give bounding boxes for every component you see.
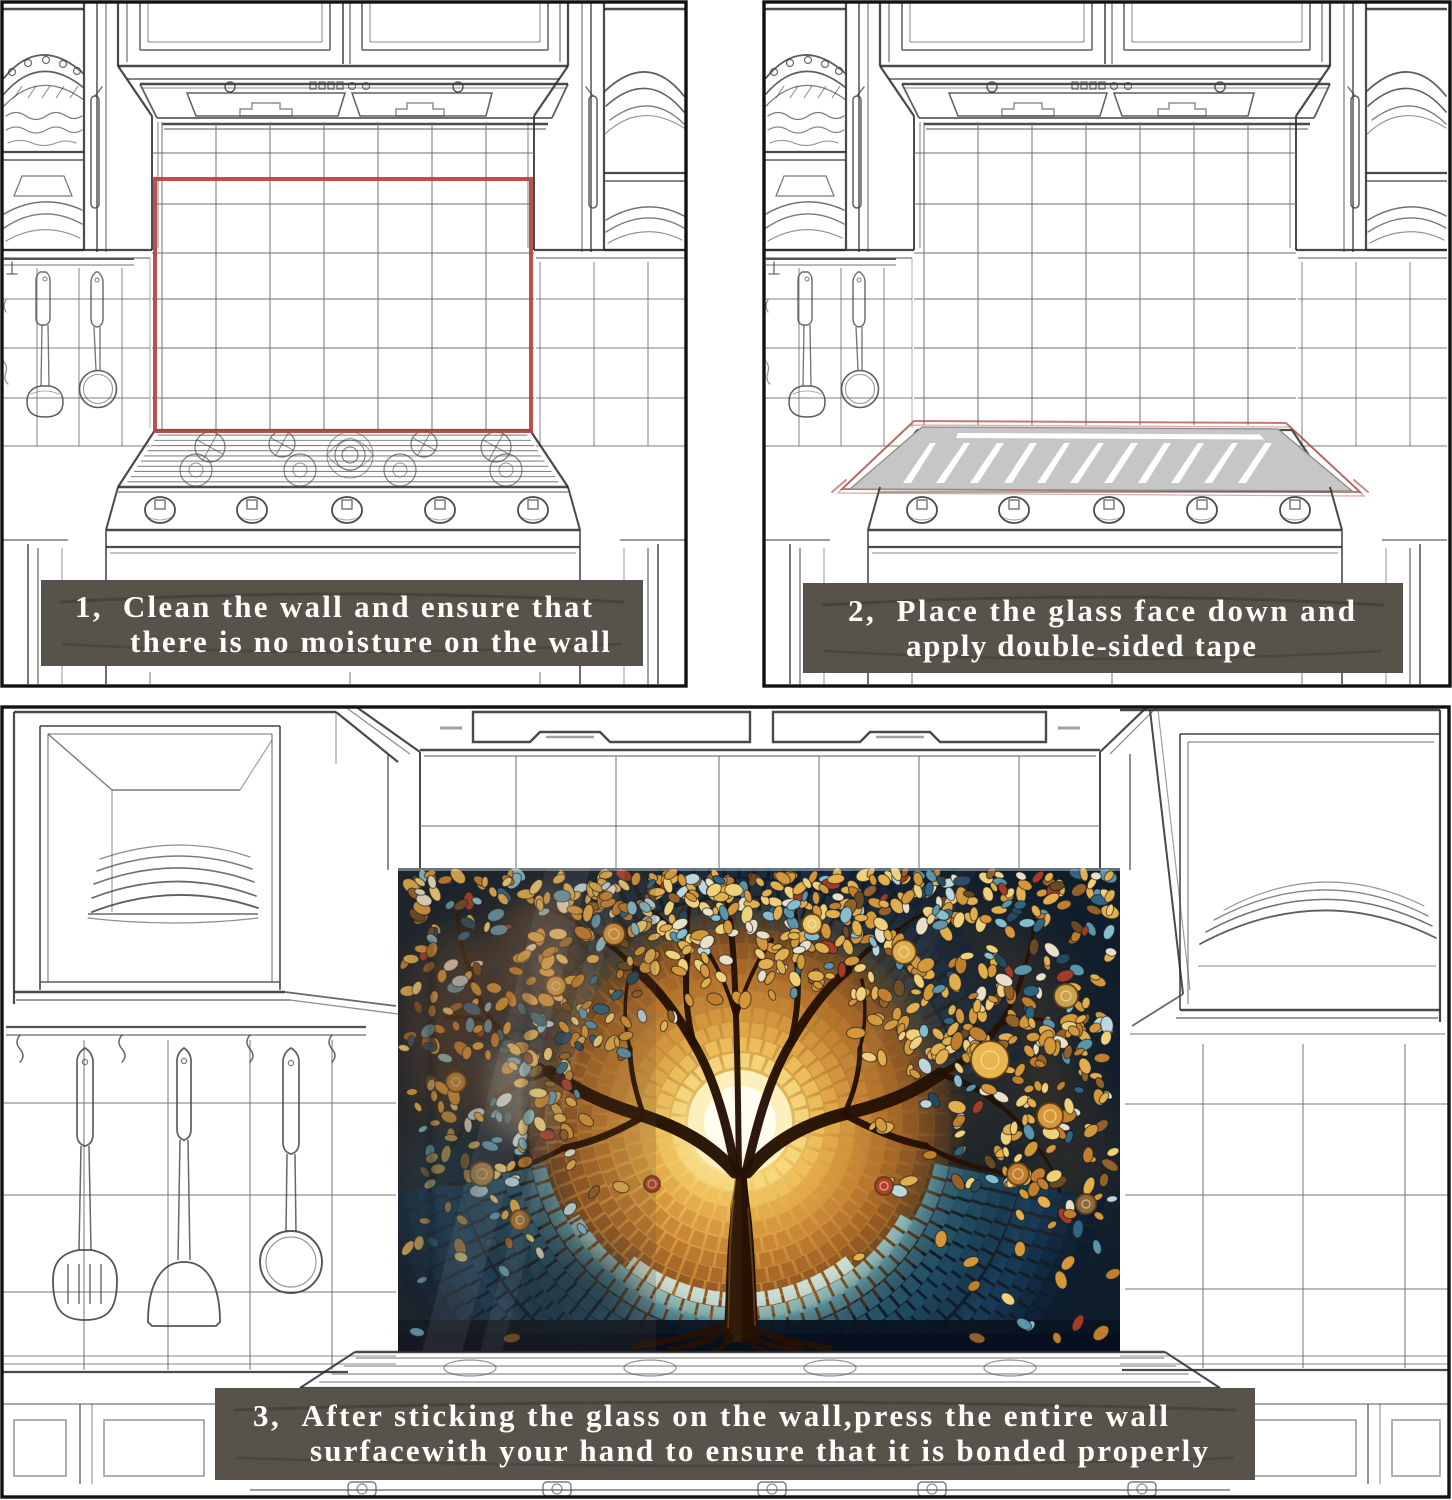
svg-text:3, After sticking the glass o: 3, After sticking the glass on the wall,… bbox=[253, 1398, 1168, 1433]
svg-text:2, Place the glass face down: 2, Place the glass face down and bbox=[848, 593, 1355, 628]
svg-text:there is no moisture on the wa: there is no moisture on the wall bbox=[130, 624, 610, 659]
svg-text:1, Clean the wall and ensure: 1, Clean the wall and ensure that bbox=[75, 589, 593, 624]
svg-text:apply double-sided tape: apply double-sided tape bbox=[906, 628, 1256, 663]
